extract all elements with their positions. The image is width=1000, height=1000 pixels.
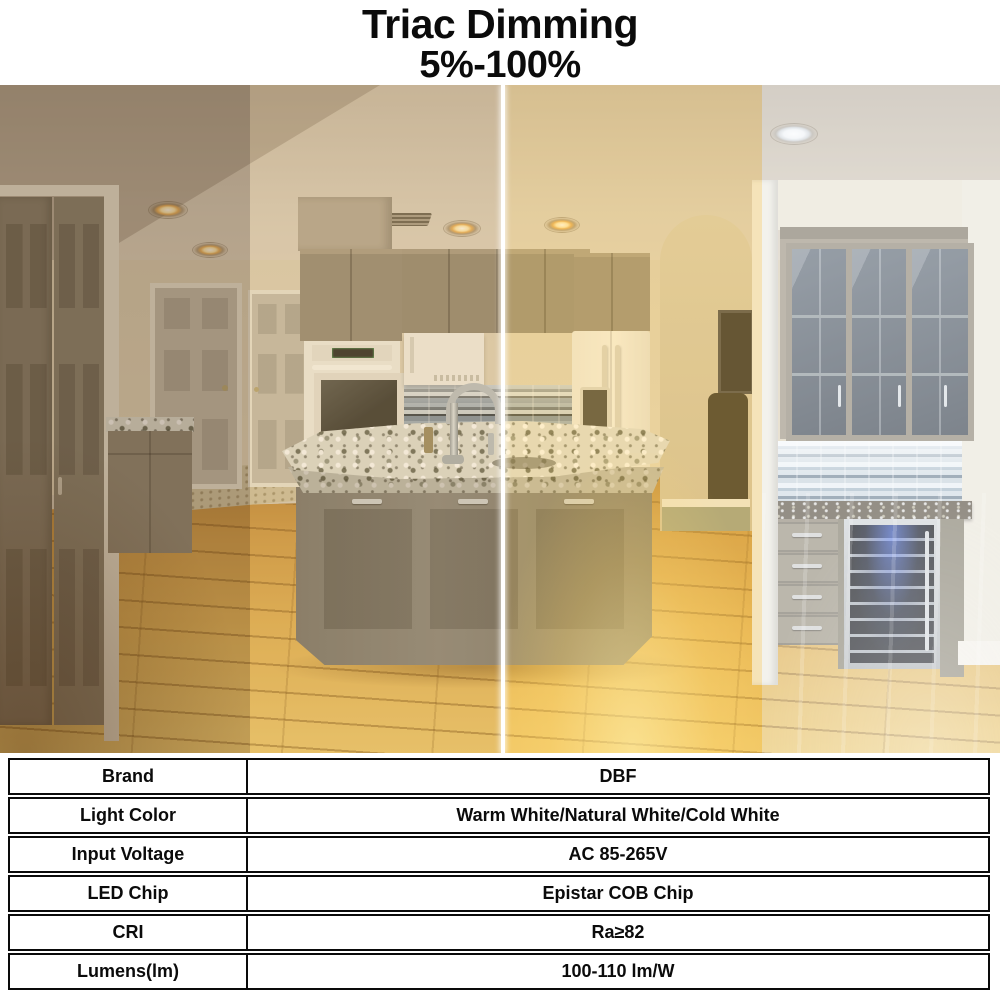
glass-cabinet-door bbox=[786, 243, 854, 441]
table-row: Lumens(lm) 100-110 lm/W bbox=[8, 953, 990, 990]
hall-countertop bbox=[106, 417, 194, 432]
recessed-light bbox=[443, 220, 481, 237]
spec-label: CRI bbox=[10, 916, 248, 949]
microwave bbox=[404, 333, 484, 385]
page-subtitle: 5%-100% bbox=[0, 46, 1000, 85]
recessed-light bbox=[148, 201, 188, 219]
soap-dispenser bbox=[424, 427, 433, 453]
soffit bbox=[298, 197, 392, 251]
floor-shade-overlay bbox=[0, 433, 250, 753]
glass-cabinet-unit bbox=[780, 227, 968, 439]
spec-value: DBF bbox=[248, 760, 988, 793]
cabinet-handle bbox=[838, 385, 841, 407]
spec-value: Warm White/Natural White/Cold White bbox=[248, 799, 988, 832]
door-knob bbox=[254, 387, 259, 392]
table-row: Input Voltage AC 85-265V bbox=[8, 836, 990, 873]
table-row: Brand DBF bbox=[8, 758, 990, 795]
cabinet-handle bbox=[898, 385, 901, 407]
oven-handle bbox=[312, 365, 392, 370]
oven-display bbox=[332, 348, 374, 358]
door-knob bbox=[222, 385, 228, 391]
spec-label: Brand bbox=[10, 760, 248, 793]
spec-label: Light Color bbox=[10, 799, 248, 832]
header: Triac Dimming 5%-100% bbox=[0, 0, 1000, 85]
faucet-sprayer bbox=[488, 433, 494, 455]
floor-glow-overlay bbox=[503, 453, 762, 753]
cabinet-handle bbox=[944, 385, 947, 407]
oven-control-panel bbox=[312, 345, 392, 361]
cabinet-handle bbox=[458, 499, 488, 504]
spec-value: Ra≥82 bbox=[248, 916, 988, 949]
product-image: Triac Dimming 5%-100% bbox=[0, 0, 1000, 1000]
wall-art bbox=[718, 310, 754, 394]
spec-value: AC 85-265V bbox=[248, 838, 988, 871]
table-row: LED Chip Epistar COB Chip bbox=[8, 875, 990, 912]
door-trim bbox=[0, 185, 112, 196]
cabinet-handle bbox=[352, 499, 382, 504]
recessed-light bbox=[770, 123, 818, 145]
floor-sheen-overlay bbox=[762, 493, 1000, 753]
strip-divider-line bbox=[501, 85, 505, 753]
upper-cabinets bbox=[300, 249, 402, 341]
recessed-light bbox=[544, 217, 580, 233]
page-title: Triac Dimming bbox=[0, 3, 1000, 46]
spec-value: Epistar COB Chip bbox=[248, 877, 988, 910]
table-row: Light Color Warm White/Natural White/Col… bbox=[8, 797, 990, 834]
kitchen-photo bbox=[0, 85, 1000, 753]
glass-cabinet-door bbox=[906, 243, 974, 441]
cabinet-above-fridge bbox=[574, 253, 650, 331]
spec-label: LED Chip bbox=[10, 877, 248, 910]
spec-label: Lumens(lm) bbox=[10, 955, 248, 988]
niche-header-wall bbox=[778, 180, 970, 230]
table-row: CRI Ra≥82 bbox=[8, 914, 990, 951]
faucet bbox=[450, 403, 458, 459]
spec-value: 100-110 lm/W bbox=[248, 955, 988, 988]
spec-table: Brand DBF Light Color Warm White/Natural… bbox=[8, 758, 990, 992]
spec-label: Input Voltage bbox=[10, 838, 248, 871]
recessed-light bbox=[192, 242, 228, 258]
upper-cabinets bbox=[402, 249, 590, 333]
glass-cabinet-door bbox=[846, 243, 914, 441]
faucet-base bbox=[442, 455, 464, 464]
